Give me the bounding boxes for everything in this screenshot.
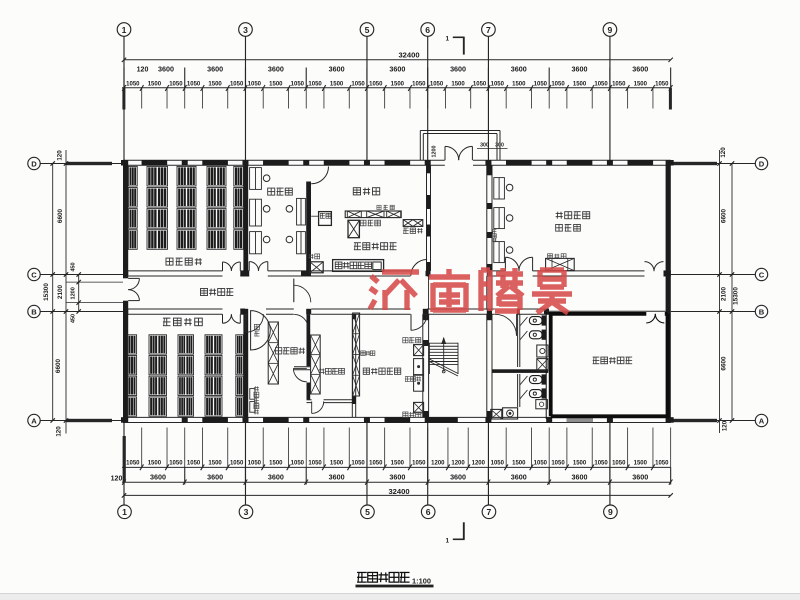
svg-text:120: 120 bbox=[56, 426, 63, 437]
svg-text:1050: 1050 bbox=[534, 82, 548, 88]
svg-text:3600: 3600 bbox=[268, 473, 284, 482]
svg-text:1500: 1500 bbox=[391, 82, 405, 88]
svg-text:1500: 1500 bbox=[573, 460, 587, 466]
svg-text:1050: 1050 bbox=[308, 82, 322, 88]
svg-text:1: 1 bbox=[446, 538, 450, 545]
svg-text:3600: 3600 bbox=[268, 65, 284, 74]
svg-text:1500: 1500 bbox=[634, 82, 648, 88]
svg-text:1050: 1050 bbox=[308, 460, 322, 466]
svg-text:1050: 1050 bbox=[248, 82, 262, 88]
svg-text:C: C bbox=[31, 271, 37, 280]
svg-text:3600: 3600 bbox=[632, 473, 648, 482]
svg-text:120: 120 bbox=[57, 150, 64, 161]
svg-text:1050: 1050 bbox=[369, 82, 383, 88]
svg-text:5: 5 bbox=[365, 25, 370, 35]
svg-text:1050: 1050 bbox=[351, 82, 365, 88]
svg-text:5: 5 bbox=[365, 507, 370, 517]
svg-text:120: 120 bbox=[137, 67, 149, 74]
svg-text:3600: 3600 bbox=[389, 65, 405, 74]
svg-text:300: 300 bbox=[495, 143, 504, 149]
svg-text:1500: 1500 bbox=[148, 460, 162, 466]
svg-text:1050: 1050 bbox=[248, 460, 262, 466]
svg-text:120: 120 bbox=[722, 420, 729, 431]
svg-text:120: 120 bbox=[720, 147, 727, 158]
svg-text:3600: 3600 bbox=[389, 473, 405, 482]
svg-text:3600: 3600 bbox=[207, 65, 223, 74]
svg-text:3600: 3600 bbox=[158, 65, 174, 74]
svg-text:1050: 1050 bbox=[551, 82, 565, 88]
svg-text:1050: 1050 bbox=[534, 460, 548, 466]
svg-text:A: A bbox=[31, 417, 37, 426]
svg-text:B: B bbox=[31, 308, 37, 317]
svg-text:1050: 1050 bbox=[655, 460, 669, 466]
svg-text:15300: 15300 bbox=[43, 283, 50, 301]
svg-text:1050: 1050 bbox=[126, 460, 140, 466]
svg-text:450: 450 bbox=[70, 262, 76, 271]
svg-text:2100: 2100 bbox=[57, 284, 64, 299]
svg-text:C: C bbox=[759, 271, 765, 280]
svg-text:1:100: 1:100 bbox=[412, 577, 431, 586]
svg-text:3600: 3600 bbox=[150, 473, 166, 482]
svg-text:15300: 15300 bbox=[733, 287, 740, 305]
svg-text:1050: 1050 bbox=[169, 82, 183, 88]
svg-text:1050: 1050 bbox=[291, 82, 305, 88]
svg-text:1500: 1500 bbox=[330, 460, 344, 466]
svg-text:3600: 3600 bbox=[450, 473, 466, 482]
svg-text:3600: 3600 bbox=[572, 473, 588, 482]
svg-text:3600: 3600 bbox=[329, 473, 345, 482]
svg-text:1050: 1050 bbox=[612, 82, 626, 88]
svg-text:1500: 1500 bbox=[269, 460, 283, 466]
svg-text:1500: 1500 bbox=[330, 82, 344, 88]
svg-text:6600: 6600 bbox=[55, 358, 62, 373]
svg-text:1200: 1200 bbox=[432, 146, 438, 158]
svg-text:1500: 1500 bbox=[512, 82, 526, 88]
svg-text:9: 9 bbox=[608, 25, 613, 35]
svg-text:3: 3 bbox=[244, 507, 249, 517]
svg-text:450: 450 bbox=[70, 314, 76, 323]
svg-text:3600: 3600 bbox=[511, 65, 527, 74]
svg-text:3600: 3600 bbox=[572, 65, 588, 74]
svg-text:6600: 6600 bbox=[721, 208, 728, 223]
svg-text:7: 7 bbox=[487, 507, 492, 517]
svg-text:1050: 1050 bbox=[473, 82, 487, 88]
svg-text:3: 3 bbox=[243, 25, 248, 35]
svg-text:1500: 1500 bbox=[148, 82, 162, 88]
svg-text:120: 120 bbox=[111, 475, 123, 482]
svg-text:3600: 3600 bbox=[450, 65, 466, 74]
svg-text:6600: 6600 bbox=[57, 208, 64, 223]
svg-text:1500: 1500 bbox=[512, 460, 526, 466]
svg-text:1500: 1500 bbox=[573, 82, 587, 88]
svg-text:1050: 1050 bbox=[230, 82, 244, 88]
svg-text:1500: 1500 bbox=[208, 82, 222, 88]
svg-text:A: A bbox=[759, 417, 765, 426]
svg-text:6: 6 bbox=[425, 25, 430, 35]
svg-text:3600: 3600 bbox=[207, 473, 223, 482]
svg-text:3600: 3600 bbox=[511, 473, 527, 482]
svg-text:1500: 1500 bbox=[634, 460, 648, 466]
svg-text:1: 1 bbox=[122, 507, 127, 517]
svg-text:1050: 1050 bbox=[351, 460, 365, 466]
svg-text:1050: 1050 bbox=[594, 460, 608, 466]
svg-text:1050: 1050 bbox=[126, 82, 140, 88]
svg-text:300: 300 bbox=[480, 143, 489, 149]
svg-text:1050: 1050 bbox=[230, 460, 244, 466]
svg-text:1050: 1050 bbox=[491, 82, 505, 88]
svg-text:1050: 1050 bbox=[491, 460, 505, 466]
svg-text:1200: 1200 bbox=[472, 460, 486, 466]
svg-text:1050: 1050 bbox=[369, 460, 383, 466]
svg-text:1050: 1050 bbox=[187, 460, 201, 466]
svg-text:6: 6 bbox=[426, 507, 431, 517]
svg-text:1500: 1500 bbox=[391, 460, 405, 466]
svg-text:D: D bbox=[31, 160, 37, 169]
svg-text:1500: 1500 bbox=[451, 82, 465, 88]
svg-text:1: 1 bbox=[122, 25, 127, 35]
svg-text:1050: 1050 bbox=[612, 460, 626, 466]
svg-text:1050: 1050 bbox=[412, 460, 426, 466]
svg-text:1050: 1050 bbox=[187, 82, 201, 88]
svg-text:3600: 3600 bbox=[329, 65, 345, 74]
svg-text:1500: 1500 bbox=[208, 460, 222, 466]
svg-text:1500: 1500 bbox=[269, 82, 283, 88]
svg-text:1050: 1050 bbox=[655, 82, 669, 88]
svg-text:7: 7 bbox=[486, 25, 491, 35]
svg-text:6600: 6600 bbox=[721, 356, 728, 371]
svg-text:32400: 32400 bbox=[398, 50, 419, 59]
svg-text:1050: 1050 bbox=[551, 460, 565, 466]
svg-text:1200: 1200 bbox=[70, 287, 76, 299]
svg-text:1050: 1050 bbox=[169, 460, 183, 466]
svg-text:1200: 1200 bbox=[431, 460, 445, 466]
svg-text:D: D bbox=[759, 160, 765, 169]
svg-text:1050: 1050 bbox=[291, 460, 305, 466]
svg-text:1: 1 bbox=[446, 36, 450, 43]
svg-text:1050: 1050 bbox=[430, 82, 444, 88]
svg-text:1200: 1200 bbox=[451, 460, 465, 466]
svg-text:2100: 2100 bbox=[721, 286, 728, 301]
svg-text:3600: 3600 bbox=[632, 65, 648, 74]
svg-text:9: 9 bbox=[608, 507, 613, 517]
svg-text:32400: 32400 bbox=[388, 487, 409, 496]
svg-text:B: B bbox=[759, 308, 765, 317]
svg-text:1050: 1050 bbox=[594, 82, 608, 88]
svg-text:1050: 1050 bbox=[412, 82, 426, 88]
